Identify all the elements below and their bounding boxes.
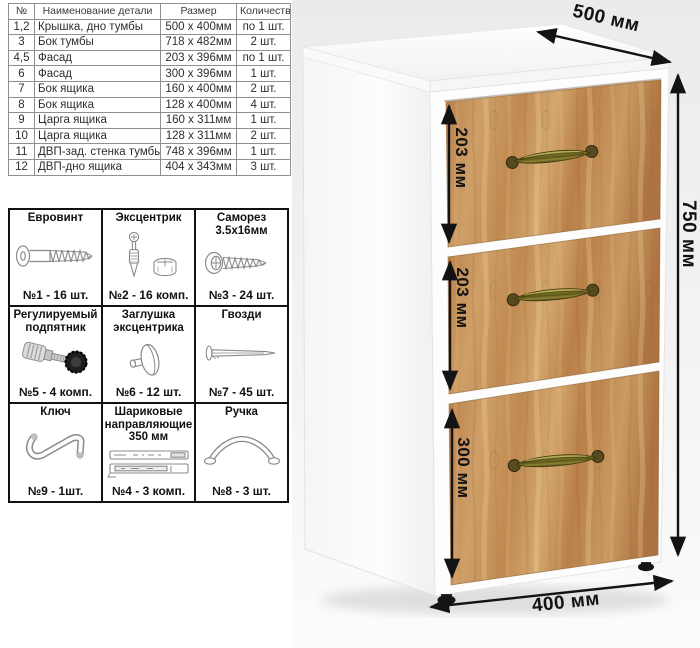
part-no: 4,5 (9, 50, 35, 66)
part-no: 11 (9, 144, 35, 160)
part-no: 7 (9, 81, 35, 97)
hardware-count: №4 - 3 комп. (112, 484, 185, 498)
hardware-item: Гвозди №7 - 45 шт. (195, 306, 288, 403)
cabinet-foot-right (638, 563, 654, 571)
cabinet-side-panel (303, 56, 435, 596)
part-name: Бок тумбы (35, 35, 161, 51)
part-name: Бок ящика (35, 81, 161, 97)
dimension-label-drawer-bottom: 300 мм (453, 423, 473, 513)
part-qty: 3 шт. (237, 159, 291, 175)
part-no: 3 (9, 35, 35, 51)
hardware-count: №7 - 45 шт. (209, 385, 275, 399)
euro-screw-icon (14, 225, 98, 288)
hardware-title: Евровинт (28, 212, 84, 225)
cam-cap-icon (107, 334, 191, 385)
part-size: 404 x 343мм (161, 159, 237, 175)
part-size: 718 x 482мм (161, 35, 237, 51)
self-tapping-screw-icon (200, 237, 284, 288)
part-qty: 4 шт. (237, 97, 291, 113)
dimension-label-drawer-top: 203 мм (451, 114, 471, 202)
part-name: Царга ящика (35, 113, 161, 129)
hardware-count: №8 - 3 шт. (212, 484, 271, 498)
parts-row: 7 Бок ящика 160 x 400мм 2 шт. (9, 81, 291, 97)
hardware-item: Ключ №9 - 1шт. (9, 403, 102, 502)
hardware-count: №3 - 24 шт. (209, 288, 275, 302)
part-qty: 2 шт. (237, 81, 291, 97)
part-size: 160 x 400мм (161, 81, 237, 97)
hardware-title: Заглушка эксцентрика (104, 309, 193, 334)
drawer-1-front (446, 80, 661, 247)
cabinet-foot-left (438, 595, 456, 605)
part-qty: 1 шт. (237, 66, 291, 82)
parts-row: 3 Бок тумбы 718 x 482мм 2 шт. (9, 35, 291, 51)
col-header-name: Наименование детали (35, 4, 161, 20)
part-qty: по 1 шт. (237, 19, 291, 35)
part-no: 6 (9, 66, 35, 82)
part-size: 128 x 311мм (161, 128, 237, 144)
hardware-title: Ключ (40, 406, 70, 419)
col-header-size: Размер (161, 4, 237, 20)
hardware-item: Евровинт №1 - 16 шт. (9, 209, 102, 306)
part-qty: по 1 шт. (237, 50, 291, 66)
part-size: 160 x 311мм (161, 113, 237, 129)
parts-row: 9 Царга ящика 160 x 311мм 1 шт. (9, 113, 291, 129)
hardware-title: Саморез 3.5x16мм (197, 212, 286, 237)
part-no: 12 (9, 159, 35, 175)
hardware-count: №5 - 4 комп. (19, 385, 92, 399)
part-name: Царга ящика (35, 128, 161, 144)
hardware-item: Саморез 3.5x16мм №3 - 24 шт. (195, 209, 288, 306)
hardware-item: Заглушка эксцентрика №6 - 12 шт. (102, 306, 195, 403)
part-size: 128 x 400мм (161, 97, 237, 113)
part-size: 748 x 396мм (161, 144, 237, 160)
nail-icon (200, 322, 284, 385)
col-header-qty: Количество (237, 4, 291, 20)
part-qty: 2 шт. (237, 35, 291, 51)
parts-row: 12 ДВП-дно ящика 404 x 343мм 3 шт. (9, 159, 291, 175)
part-qty: 1 шт. (237, 113, 291, 129)
part-no: 8 (9, 97, 35, 113)
parts-row: 4,5 Фасад 203 x 396мм по 1 шт. (9, 50, 291, 66)
part-size: 500 x 400мм (161, 19, 237, 35)
col-header-number: № (9, 4, 35, 20)
parts-row: 1,2 Крышка, дно тумбы 500 x 400мм по 1 ш… (9, 19, 291, 35)
hardware-title: Регулируемый подпятник (11, 309, 100, 334)
parts-row: 8 Бок ящика 128 x 400мм 4 шт. (9, 97, 291, 113)
adjustable-foot-icon (14, 334, 98, 385)
parts-row: 6 Фасад 300 x 396мм 1 шт. (9, 66, 291, 82)
hardware-item: Эксцентрик №2 - 16 комп. (102, 209, 195, 306)
parts-header-row: № Наименование детали Размер Количество (9, 4, 291, 20)
hardware-item: Регулируемый подпятник №5 - 4 комп. (9, 306, 102, 403)
part-name: Фасад (35, 50, 161, 66)
hardware-title: Эксцентрик (115, 212, 181, 225)
part-name: Бок ящика (35, 97, 161, 113)
handle-icon (200, 419, 284, 484)
hardware-item: Шариковые направляющие 350 мм №4 - 3 ком… (102, 403, 195, 502)
part-name: Крышка, дно тумбы (35, 19, 161, 35)
part-size: 300 x 396мм (161, 66, 237, 82)
hardware-grid: Евровинт №1 - 16 шт. Эксцентрик (8, 208, 289, 503)
part-size: 203 x 396мм (161, 50, 237, 66)
part-no: 10 (9, 128, 35, 144)
parts-row: 10 Царга ящика 128 x 311мм 2 шт. (9, 128, 291, 144)
part-qty: 2 шт. (237, 128, 291, 144)
hardware-count: №9 - 1шт. (28, 484, 84, 498)
ball-slides-icon (107, 444, 191, 484)
parts-row: 11 ДВП-зад. стенка тумбы 748 x 396мм 1 ш… (9, 144, 291, 160)
dimension-label-drawer-middle: 203 мм (452, 254, 472, 342)
part-name: ДВП-зад. стенка тумбы (35, 144, 161, 160)
hardware-item: Ручка №8 - 3 шт. (195, 403, 288, 502)
drawer-3-front (449, 371, 659, 585)
hardware-count: №6 - 12 шт. (116, 385, 182, 399)
dimension-label-height: 750 мм (677, 186, 699, 282)
part-qty: 1 шт. (237, 144, 291, 160)
parts-table: № Наименование детали Размер Количество … (8, 3, 291, 176)
hex-key-icon (14, 419, 98, 484)
part-no: 1,2 (9, 19, 35, 35)
part-name: Фасад (35, 66, 161, 82)
hardware-title: Ручка (225, 406, 258, 419)
cam-lock-icon (107, 225, 191, 288)
hardware-title: Шариковые направляющие 350 мм (104, 406, 193, 444)
hardware-count: №2 - 16 комп. (109, 288, 189, 302)
hardware-count: №1 - 16 шт. (23, 288, 89, 302)
part-name: ДВП-дно ящика (35, 159, 161, 175)
part-no: 9 (9, 113, 35, 129)
hardware-title: Гвозди (221, 309, 261, 322)
